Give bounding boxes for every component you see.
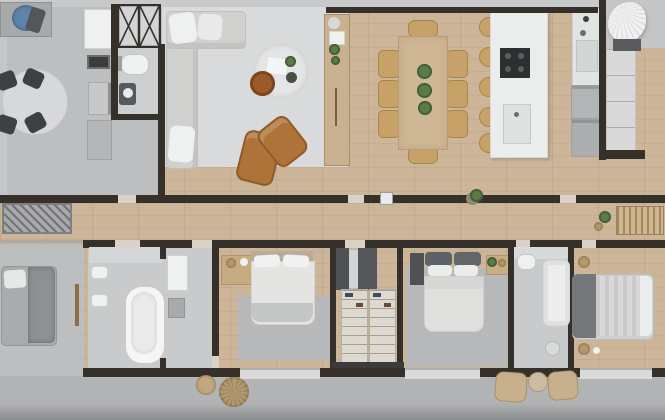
console-handle <box>335 88 337 126</box>
wall <box>508 245 514 368</box>
wall <box>158 44 165 197</box>
dining-chair <box>446 50 468 78</box>
copper-side-table <box>250 71 275 96</box>
dining-chair <box>446 80 468 108</box>
burner <box>518 53 524 59</box>
door-opening <box>212 356 219 368</box>
burner <box>505 53 511 59</box>
terrace-chair <box>547 370 579 402</box>
folded-clothes <box>356 303 363 307</box>
bed3-sheet <box>640 276 652 336</box>
drain-mat <box>545 341 560 356</box>
door-opening <box>192 240 212 248</box>
shower-fixture <box>167 255 188 291</box>
glass-door <box>405 368 480 379</box>
closet-shelving-unit <box>341 289 368 367</box>
wall <box>599 0 606 160</box>
top-exterior-band <box>0 0 665 7</box>
ensuite-shower <box>543 260 570 326</box>
island-sink <box>503 104 531 144</box>
nightstand-basket <box>498 259 506 267</box>
ensuite-toilet <box>517 254 536 270</box>
bedroom3-dish <box>593 347 600 354</box>
x-brace-icon <box>117 4 161 48</box>
entry-doormat <box>2 203 72 234</box>
bench-plant <box>599 211 611 223</box>
console-plant <box>329 44 340 55</box>
wall-stub <box>160 245 166 259</box>
bed2-pillow-dark <box>454 252 481 266</box>
woven-ball <box>219 377 249 407</box>
wall <box>212 245 219 368</box>
faucet <box>580 30 586 36</box>
bathtub-basin <box>131 292 157 354</box>
hallway-bench <box>616 206 664 235</box>
dining-chair <box>378 110 400 138</box>
dark-wardrobe <box>336 248 349 290</box>
counter-sink <box>576 40 598 72</box>
glass-door <box>240 368 320 379</box>
bed2-pillow-white <box>454 265 478 276</box>
kitchenette-cabinet <box>87 120 112 160</box>
sofa-pillow <box>197 13 223 41</box>
console-dish <box>328 17 340 29</box>
bed3-headboard <box>572 274 596 338</box>
daybed-duvet <box>28 267 55 343</box>
toilet <box>121 54 149 75</box>
appliance-box <box>571 85 602 119</box>
kitchenette-fridge <box>88 82 112 115</box>
dresser-decor <box>226 258 236 268</box>
dining-chair <box>378 80 400 108</box>
centerpiece-plant <box>418 101 432 115</box>
switch-panel <box>380 192 393 205</box>
door-opening <box>348 195 364 203</box>
folded-clothes <box>345 293 353 297</box>
kitchenette-oven <box>87 55 110 69</box>
wall <box>397 245 403 368</box>
folded-clothes <box>373 293 381 297</box>
shower-zone <box>89 247 162 263</box>
centerpiece-plant <box>417 83 432 98</box>
appliance-box <box>571 119 602 157</box>
bed1-pillow <box>283 254 310 267</box>
island-faucet <box>514 112 519 117</box>
door-opening <box>118 195 136 203</box>
dining-chair <box>446 110 468 138</box>
daybed-pillow <box>3 269 26 288</box>
wall-sink <box>91 266 108 279</box>
table-bowl <box>286 72 297 83</box>
hallway-plant <box>470 189 483 202</box>
woven-ball <box>196 375 216 395</box>
wall <box>326 7 598 13</box>
bed2-pillow-white <box>428 265 452 276</box>
shaft-frame <box>117 4 161 48</box>
wall-sink <box>91 294 108 307</box>
dresser-vase <box>240 258 248 266</box>
closet-mirror-bay <box>349 250 358 288</box>
bench-basket <box>594 222 603 231</box>
nightstand-dark <box>410 253 424 285</box>
bed3-duvet-folds <box>596 276 640 336</box>
dark-wardrobe <box>358 248 377 290</box>
bed2-duvet <box>424 276 484 332</box>
terrace-edge-line <box>0 240 83 243</box>
centerpiece-plant <box>417 64 432 79</box>
white-storage-cabinet <box>84 9 113 49</box>
bed1-pillow <box>254 254 281 267</box>
sofa-pillow <box>167 125 195 163</box>
open-door-leaf <box>75 284 79 326</box>
door-opening <box>560 195 576 203</box>
sink-bowl <box>123 88 133 98</box>
wall <box>111 4 118 120</box>
closet-shelving-unit <box>369 289 396 367</box>
terrace-chair <box>494 371 528 403</box>
burner <box>518 66 524 72</box>
wall <box>111 114 162 120</box>
pantry-appliance <box>613 39 641 51</box>
wall <box>599 150 645 159</box>
bath-cabinet <box>168 298 185 318</box>
bed1-throw <box>251 303 313 322</box>
table-plant <box>285 56 296 67</box>
console-plant <box>331 56 340 65</box>
nightstand-plant <box>487 257 497 267</box>
burner <box>505 66 511 72</box>
hallway-south-wall <box>83 240 665 248</box>
dining-chair <box>378 50 400 78</box>
door-opening <box>582 240 596 248</box>
folded-clothes <box>384 303 391 307</box>
door-opening <box>345 240 365 248</box>
terrace-side-table <box>528 372 548 392</box>
tall-cabinet-column <box>606 48 636 152</box>
faucet <box>583 16 589 22</box>
floor-plan-render <box>0 0 665 420</box>
bedroom3-decor <box>578 256 590 268</box>
glass-door <box>580 368 652 379</box>
console-box <box>329 31 345 45</box>
bedroom3-decor <box>578 343 590 355</box>
sofa-pillow <box>168 11 198 44</box>
bed2-pillow-dark <box>425 252 452 266</box>
island-cooktop <box>500 48 530 78</box>
south-wall <box>83 368 665 377</box>
